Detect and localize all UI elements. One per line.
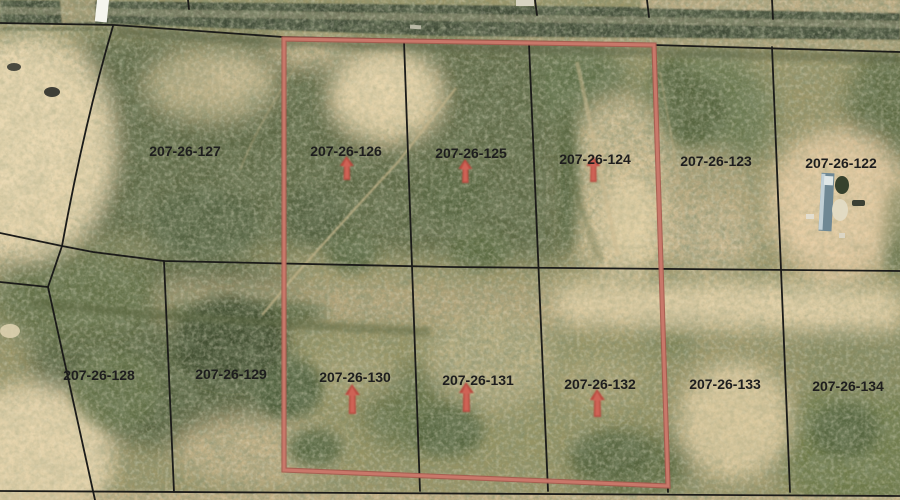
svg-text:207-26-125: 207-26-125 [435, 145, 507, 161]
svg-text:207-26-122: 207-26-122 [805, 155, 877, 171]
svg-text:207-26-130: 207-26-130 [319, 369, 391, 385]
svg-text:207-26-128: 207-26-128 [63, 367, 135, 383]
svg-text:207-26-124: 207-26-124 [559, 151, 631, 167]
svg-text:207-26-132: 207-26-132 [564, 376, 636, 392]
svg-text:207-26-127: 207-26-127 [149, 143, 221, 159]
svg-text:207-26-133: 207-26-133 [689, 376, 761, 392]
svg-text:207-26-134: 207-26-134 [812, 378, 884, 394]
svg-text:207-26-123: 207-26-123 [680, 153, 752, 169]
svg-text:207-26-129: 207-26-129 [195, 366, 267, 382]
svg-text:207-26-126: 207-26-126 [310, 143, 382, 159]
svg-text:207-26-131: 207-26-131 [442, 372, 514, 388]
